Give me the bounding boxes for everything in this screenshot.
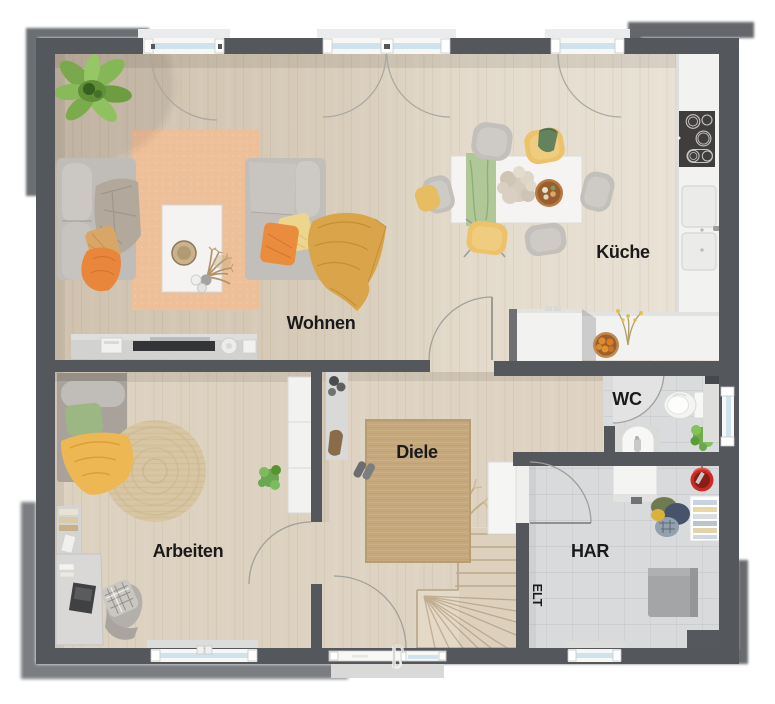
svg-text:Diele: Diele [396, 442, 438, 462]
svg-text:Küche: Küche [596, 242, 650, 262]
svg-text:ELT: ELT [530, 584, 544, 607]
svg-text:Arbeiten: Arbeiten [153, 541, 224, 561]
svg-text:Wohnen: Wohnen [287, 313, 356, 333]
svg-text:WC: WC [612, 389, 642, 409]
svg-text:HAR: HAR [571, 541, 609, 561]
